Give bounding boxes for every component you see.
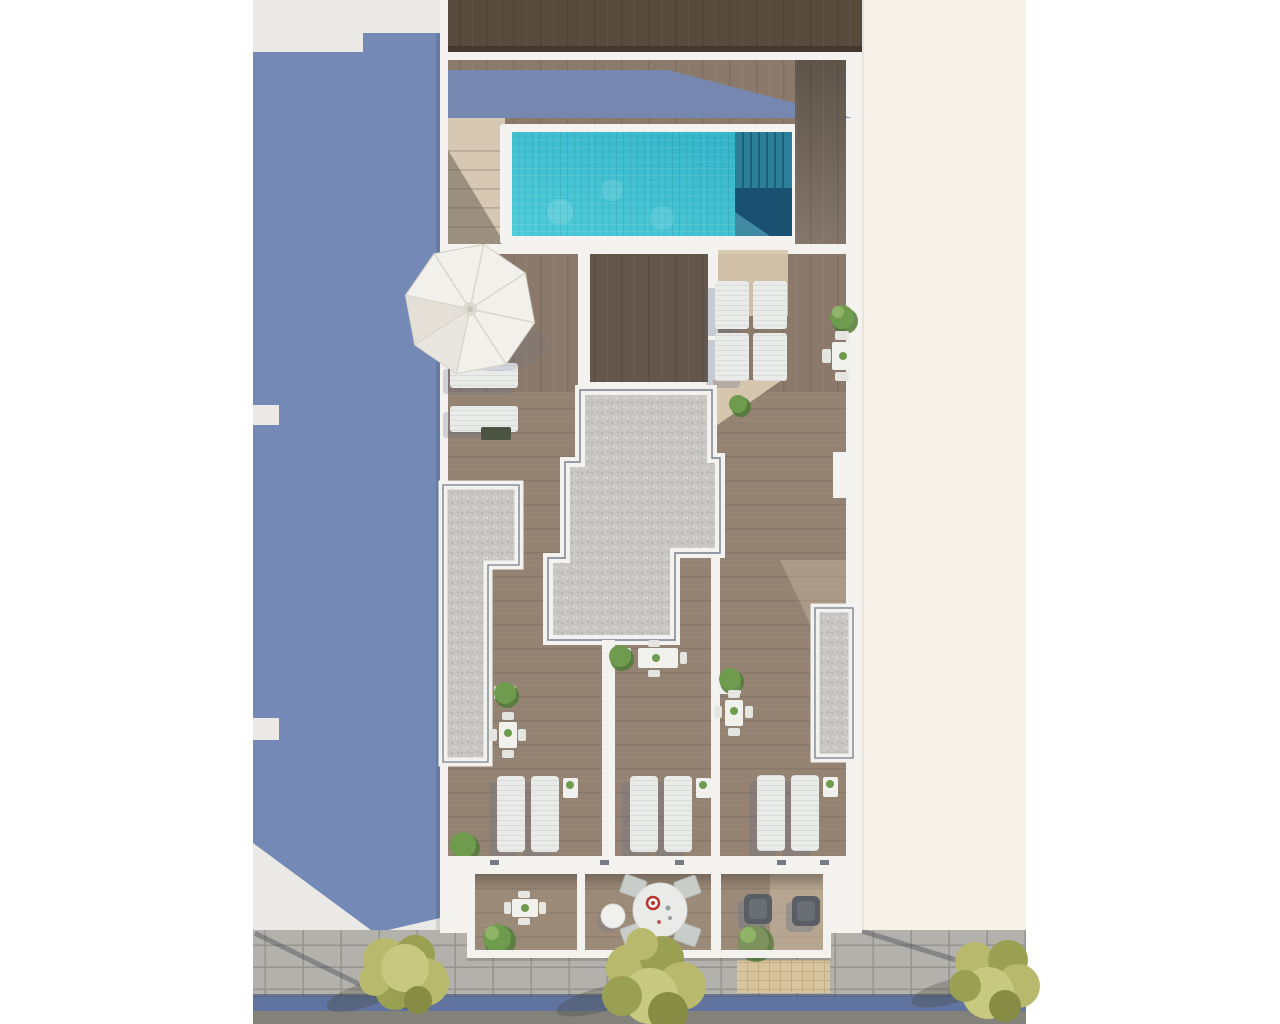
wall-notch	[833, 452, 862, 498]
swimming-pool	[500, 124, 800, 244]
pool-steps-ledge	[735, 132, 792, 236]
front-parapet-wall	[448, 856, 846, 870]
aerial-rooftop-render	[0, 0, 1280, 1024]
sun-lounger	[791, 775, 819, 851]
side-table-round	[601, 904, 625, 928]
sun-lounger	[664, 776, 692, 852]
sun-lounger	[497, 776, 525, 852]
terrace-divider-wall	[602, 640, 615, 862]
left-roof-column	[253, 0, 440, 933]
gravel-planter-strip	[815, 608, 853, 758]
sun-lounger	[531, 776, 559, 852]
sun-lounger	[753, 281, 787, 329]
sun-lounger	[715, 281, 749, 329]
sun-lounger	[757, 775, 785, 851]
low-table-dark	[481, 427, 511, 440]
building-rooftop	[440, 0, 862, 962]
adjacent-building-shadow	[253, 33, 440, 933]
tactile-paving-patch	[737, 960, 830, 993]
stair-flight	[448, 118, 505, 244]
shaded-deck-panel	[578, 244, 718, 392]
sun-lounger	[715, 333, 749, 381]
sun-lounger	[630, 776, 658, 852]
scene-canvas	[0, 0, 1280, 1024]
pergola-deck	[448, 0, 862, 52]
poolside-loungers	[706, 281, 787, 388]
right-roof-column	[862, 0, 1026, 930]
sun-lounger	[753, 333, 787, 381]
